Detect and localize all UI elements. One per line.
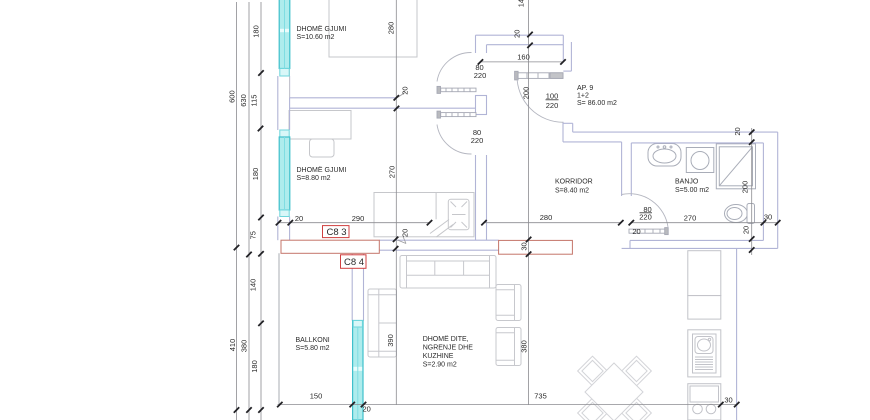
- svg-text:BANJO: BANJO: [675, 179, 699, 186]
- svg-text:270: 270: [684, 214, 697, 223]
- svg-text:BALLKONI: BALLKONI: [296, 337, 330, 344]
- svg-text:280: 280: [387, 22, 396, 35]
- svg-text:220: 220: [474, 71, 487, 80]
- svg-text:DHOMË DITE,: DHOMË DITE,: [423, 335, 469, 343]
- svg-text:115: 115: [250, 95, 259, 107]
- svg-text:S=2.90 m2: S=2.90 m2: [423, 361, 457, 368]
- svg-text:30: 30: [724, 395, 732, 404]
- svg-text:30: 30: [520, 242, 529, 250]
- svg-text:20: 20: [632, 227, 640, 236]
- svg-text:100: 100: [546, 92, 559, 101]
- svg-text:150: 150: [310, 392, 323, 401]
- svg-text:30: 30: [764, 213, 772, 222]
- svg-text:630: 630: [239, 94, 248, 107]
- svg-text:C8 4: C8 4: [344, 257, 364, 268]
- svg-text:180: 180: [250, 360, 259, 373]
- svg-text:75: 75: [249, 231, 258, 239]
- svg-text:290: 290: [352, 214, 365, 223]
- svg-text:280: 280: [540, 213, 553, 222]
- svg-text:NGRENJE DHE: NGRENJE DHE: [423, 345, 474, 352]
- svg-text:AP. 9: AP. 9: [577, 85, 593, 92]
- svg-text:20: 20: [513, 30, 522, 38]
- svg-text:C8 3: C8 3: [327, 227, 347, 238]
- svg-text:S=5.80 m2: S=5.80 m2: [296, 345, 330, 352]
- svg-text:600: 600: [228, 90, 237, 103]
- svg-text:390: 390: [386, 334, 395, 347]
- svg-text:220: 220: [546, 101, 559, 110]
- svg-text:735: 735: [534, 392, 547, 401]
- svg-text:200: 200: [741, 181, 750, 194]
- svg-text:180: 180: [252, 25, 261, 38]
- svg-text:220: 220: [639, 213, 652, 222]
- svg-text:DHOMË GJUMI: DHOMË GJUMI: [297, 25, 347, 33]
- svg-text:380: 380: [520, 340, 529, 353]
- svg-text:200: 200: [522, 87, 531, 100]
- svg-text:20: 20: [295, 214, 303, 223]
- svg-text:140: 140: [517, 0, 526, 7]
- svg-text:S=5.00 m2: S=5.00 m2: [675, 187, 709, 194]
- svg-text:DHOMË GJUMI: DHOMË GJUMI: [297, 166, 347, 174]
- svg-text:220: 220: [471, 136, 484, 145]
- svg-text:KUZHINE: KUZHINE: [423, 353, 454, 360]
- svg-text:S= 86.00 m2: S= 86.00 m2: [577, 100, 617, 107]
- svg-text:20: 20: [363, 405, 371, 414]
- svg-text:20: 20: [401, 86, 410, 94]
- svg-text:180: 180: [251, 168, 260, 181]
- svg-text:410: 410: [228, 339, 237, 352]
- svg-text:KORRIDOR: KORRIDOR: [555, 179, 593, 186]
- svg-text:20: 20: [742, 226, 751, 234]
- svg-text:20: 20: [401, 229, 410, 237]
- svg-text:140: 140: [249, 279, 258, 292]
- svg-text:1+2: 1+2: [577, 93, 589, 100]
- svg-text:380: 380: [240, 340, 249, 353]
- svg-text:S=8.80 m2: S=8.80 m2: [297, 175, 331, 182]
- svg-text:S=8.40 m2: S=8.40 m2: [555, 187, 589, 194]
- svg-text:20: 20: [733, 127, 742, 135]
- svg-text:160: 160: [517, 53, 530, 62]
- svg-text:270: 270: [388, 166, 397, 179]
- svg-text:S=10.60 m2: S=10.60 m2: [297, 34, 335, 41]
